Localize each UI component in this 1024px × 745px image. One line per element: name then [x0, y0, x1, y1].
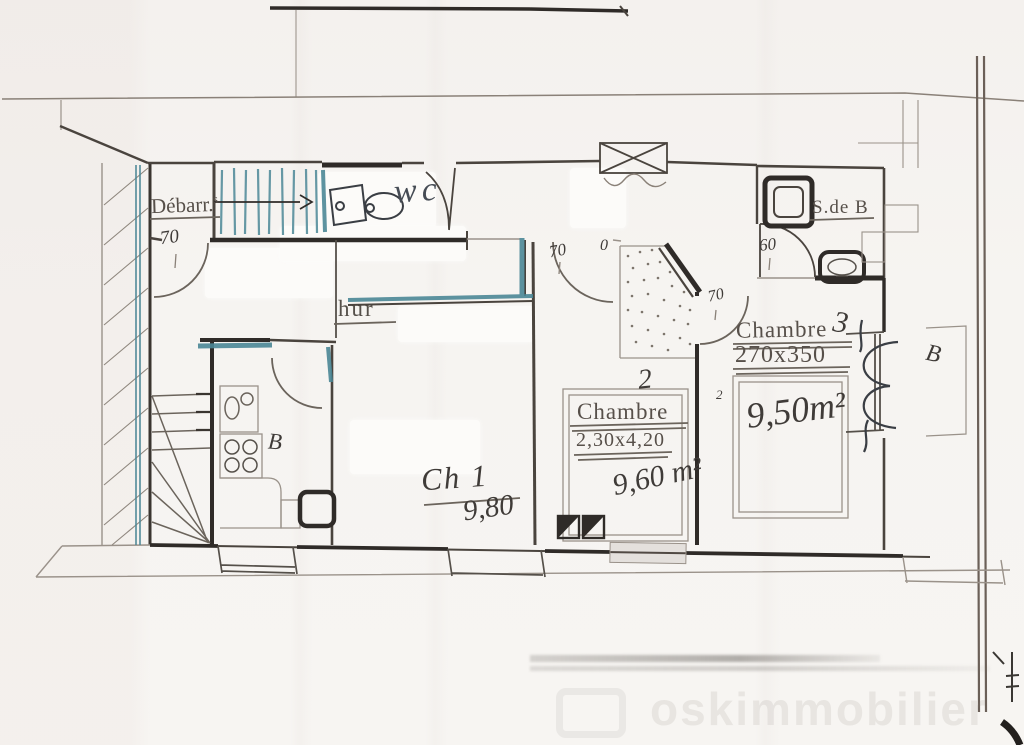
floorplan-linework	[0, 0, 1024, 745]
watermark-logo	[556, 688, 626, 738]
room-label-sdb: S.de B	[812, 198, 869, 217]
watermark-text: oskimmobilier	[650, 682, 988, 736]
boiler-icon	[300, 492, 334, 526]
scanned-floorplan-page: hur	[0, 0, 1024, 745]
stove-icon	[220, 434, 262, 478]
room-label-chambre2: Chambre	[577, 400, 668, 423]
scan-artifacts	[2, 6, 1024, 745]
kitchen-sink-icon	[225, 393, 253, 419]
kitchen-counter	[220, 386, 300, 528]
graphite-smudge	[530, 666, 990, 671]
chambre2-dimensions: 2,30x4,20	[576, 430, 665, 450]
staircase-upper	[214, 168, 317, 235]
room-label-ch1: Ch 1	[420, 460, 489, 496]
door-dim-corridor: 70	[548, 241, 568, 261]
chambre3-dimensions: 270x350	[735, 343, 826, 367]
room-label-chambre3: Chambre	[736, 317, 828, 342]
ch1-area: 9,80	[461, 491, 515, 527]
toilet-icon	[330, 185, 403, 225]
skylight-crossed-box	[600, 143, 667, 187]
chambre3-corner-note: 2	[716, 388, 723, 401]
room-label-debarras: Débarr.s	[151, 193, 219, 217]
pen-scribbles	[860, 320, 898, 452]
zero-mark: 0	[600, 238, 608, 254]
graphite-smudge	[530, 655, 880, 662]
staircase-lower	[152, 394, 210, 543]
wall-hatching	[104, 168, 148, 545]
door-dim-chambre3: 70	[707, 287, 726, 306]
chambre2-number: 2	[637, 365, 654, 394]
construction-lines	[858, 100, 918, 262]
room-label-wc: wc	[393, 172, 443, 209]
wall-highlight-teal-left	[136, 165, 140, 545]
debarras-text: Débarr.	[151, 192, 214, 218]
door-dim-debarras: 70	[159, 227, 180, 248]
debarras-superscript: s	[213, 192, 218, 206]
door-dim-sdb: 60	[758, 235, 777, 254]
kitchen-note: B	[267, 430, 283, 454]
shower-icon	[765, 178, 812, 226]
